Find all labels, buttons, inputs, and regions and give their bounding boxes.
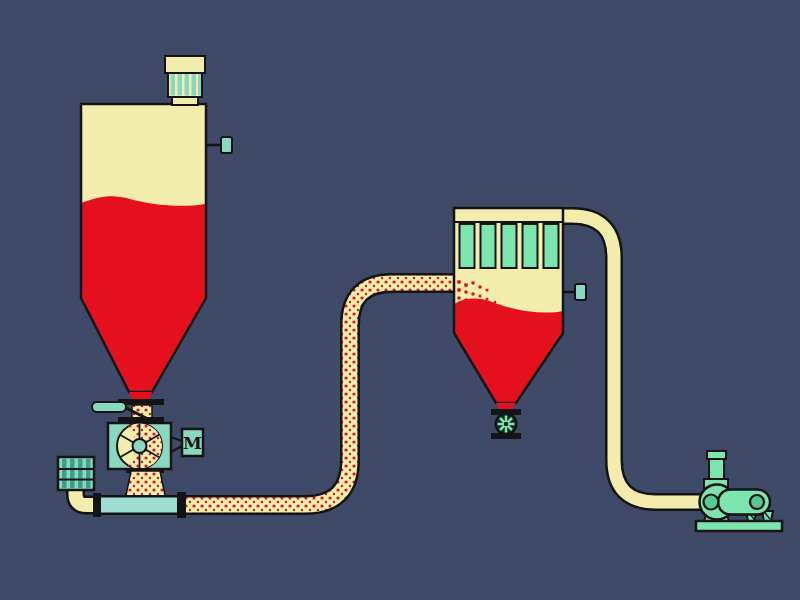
- pipe-flange: [177, 492, 186, 518]
- pump-base-plate: [696, 521, 782, 531]
- rotor-hub: [133, 439, 147, 453]
- silo-outlet: [129, 392, 152, 400]
- motor-label: M: [183, 433, 202, 453]
- silo-vent-filter: [165, 56, 205, 105]
- vent-filter-cap: [165, 56, 205, 73]
- pump-drive-eye: [750, 495, 764, 509]
- sensor-body: [575, 284, 586, 300]
- process-diagram: M: [0, 0, 800, 600]
- discharge-flange-bottom: [491, 433, 521, 439]
- pneumatic-conveying-diagram: M: [0, 0, 800, 600]
- pump-inlet-eye: [704, 495, 719, 510]
- filter-elements: [460, 224, 559, 268]
- elbow-flange: [93, 493, 101, 517]
- sensor-body: [221, 137, 232, 153]
- intake-air-filter-silencer: [58, 457, 94, 490]
- discharge-valve-hub: [504, 422, 508, 426]
- rotary-airlock-valve: [108, 423, 171, 469]
- exhaust-flare: [707, 451, 726, 459]
- gate-handle: [92, 402, 126, 412]
